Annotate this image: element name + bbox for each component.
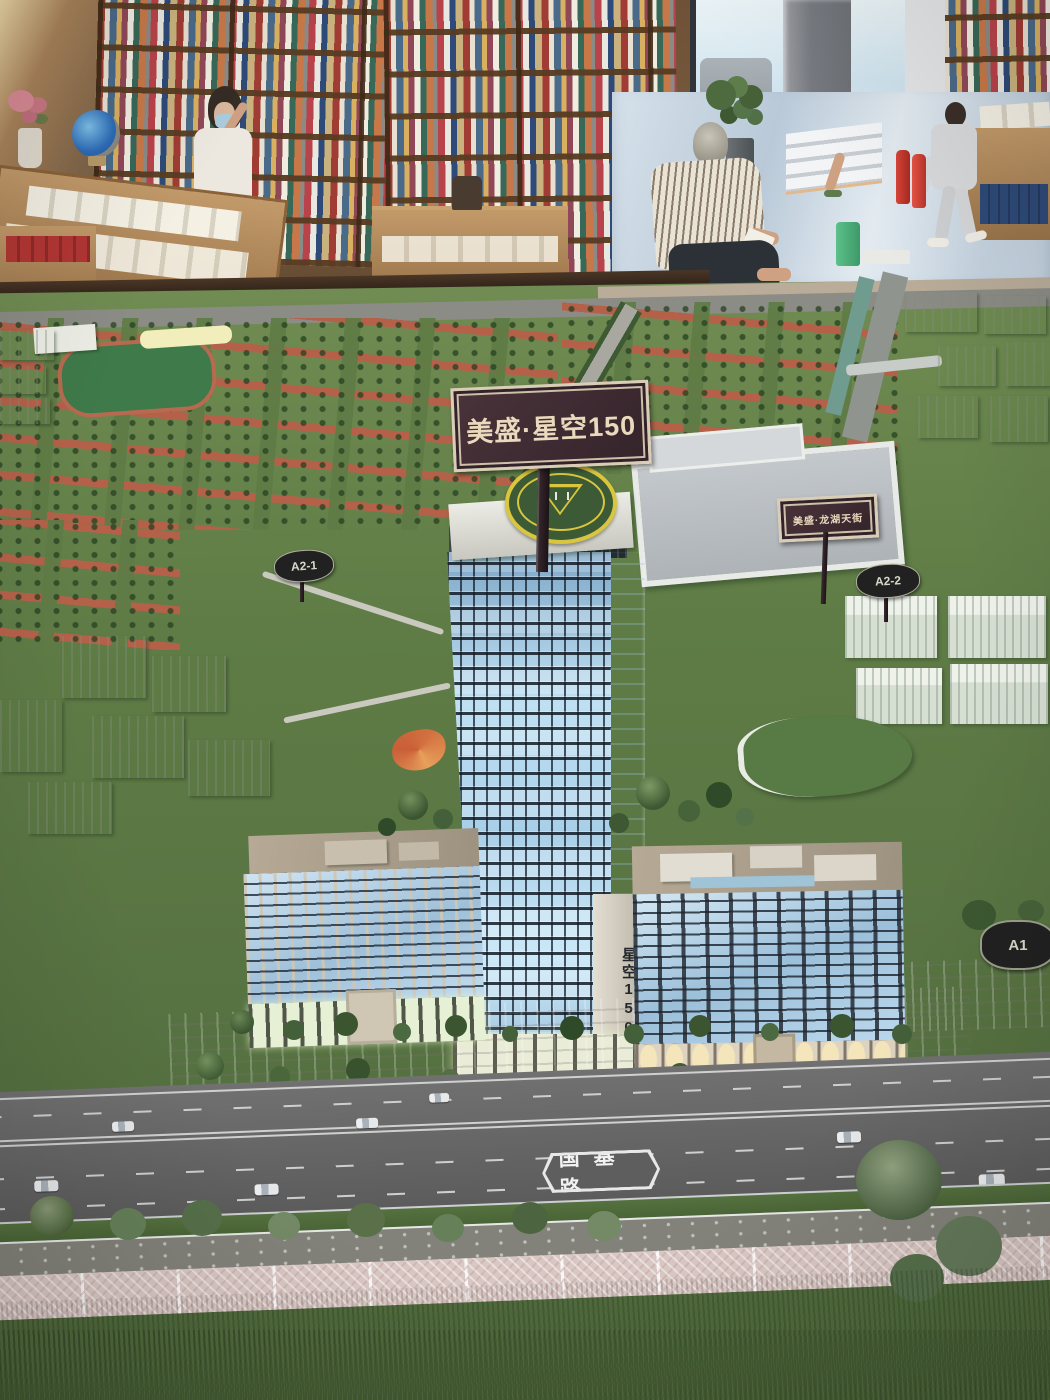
man-leg — [757, 268, 791, 281]
pale-building — [0, 330, 54, 360]
model-car — [112, 1121, 134, 1132]
pale-building — [62, 636, 146, 698]
sculpture — [452, 176, 482, 210]
flower-vase — [18, 128, 42, 168]
a2-1-text: A2-1 — [291, 558, 318, 574]
globe-stand — [88, 156, 106, 166]
big-tree — [856, 1140, 942, 1220]
plant-leaves — [706, 80, 736, 110]
main-sign-post — [536, 452, 550, 572]
foreground-grass-bottom — [0, 1330, 1050, 1400]
a1-text: A1 — [1008, 937, 1027, 954]
left-midrise-facade — [244, 866, 484, 1006]
road-name-text: 国基路 — [558, 1139, 658, 1203]
pale-building — [92, 716, 184, 778]
pale-building — [28, 782, 112, 834]
pale-building — [188, 740, 270, 796]
white-box — [862, 250, 910, 264]
red-books-row — [6, 236, 90, 262]
roof-penthouse — [399, 841, 440, 860]
girl-leg — [954, 187, 977, 239]
girl-shoe — [927, 238, 949, 247]
roof-penthouse — [814, 854, 876, 881]
model-car — [34, 1180, 58, 1192]
fire-extinguisher — [912, 154, 926, 208]
books-on-shelf — [382, 236, 558, 262]
bookstore-model-photo: 美盛·龙湖天街 星空150 美盛·星空150 A2-1 — [0, 0, 1050, 1400]
pale-building — [0, 700, 62, 772]
pale-building — [1006, 342, 1050, 386]
green-cup — [836, 222, 860, 266]
model-car — [254, 1184, 278, 1196]
mall-sign-text: 美盛·龙湖天街 — [792, 509, 863, 528]
center-line — [0, 1099, 1050, 1143]
pale-building — [0, 398, 50, 424]
slipper — [824, 190, 842, 197]
roof-skylight — [690, 875, 814, 888]
courtyard-trees — [636, 776, 670, 810]
girl-leg — [934, 185, 956, 240]
entrance-portico — [346, 989, 398, 1045]
model-car — [356, 1118, 378, 1129]
main-sign-text: 美盛·星空150 — [465, 403, 637, 449]
glass-building — [845, 596, 937, 658]
model-car — [429, 1093, 449, 1103]
left-midrise — [242, 828, 492, 1056]
glass-building — [856, 668, 942, 724]
terracotta-blocks-lowleft — [0, 520, 180, 650]
model-car — [837, 1131, 861, 1143]
pale-building — [152, 656, 226, 712]
helipad-h-mark — [555, 492, 569, 500]
pale-building — [990, 396, 1048, 442]
street-tree-row — [30, 1196, 74, 1236]
flower-bouquet — [8, 90, 34, 112]
pale-building — [0, 366, 46, 394]
man-head — [693, 122, 728, 164]
globe — [72, 110, 120, 158]
main-sign-board: 美盛·星空150 — [450, 380, 651, 473]
pale-building — [918, 396, 978, 438]
girl-shirt — [931, 124, 977, 190]
pale-building — [984, 296, 1046, 334]
glass-building — [948, 596, 1046, 658]
right-midrise-facade — [633, 890, 906, 1047]
fire-extinguisher — [896, 150, 910, 204]
pale-building — [905, 292, 977, 332]
road-name-plate: 国基路 — [541, 1149, 660, 1194]
road-name-plate-inner: 国基路 — [545, 1152, 658, 1190]
a2-2-text: A2-2 — [875, 573, 902, 588]
plaza-tree-row — [230, 1010, 254, 1034]
glass-building — [950, 664, 1048, 724]
roof-penthouse — [750, 845, 802, 868]
pale-building — [938, 346, 996, 386]
helipad — [505, 462, 617, 544]
courtyard-trees — [398, 790, 428, 820]
plaza-tree-row — [196, 1052, 224, 1080]
plot-sign-a1: A1 — [980, 920, 1050, 970]
roof-penthouse — [324, 839, 387, 865]
